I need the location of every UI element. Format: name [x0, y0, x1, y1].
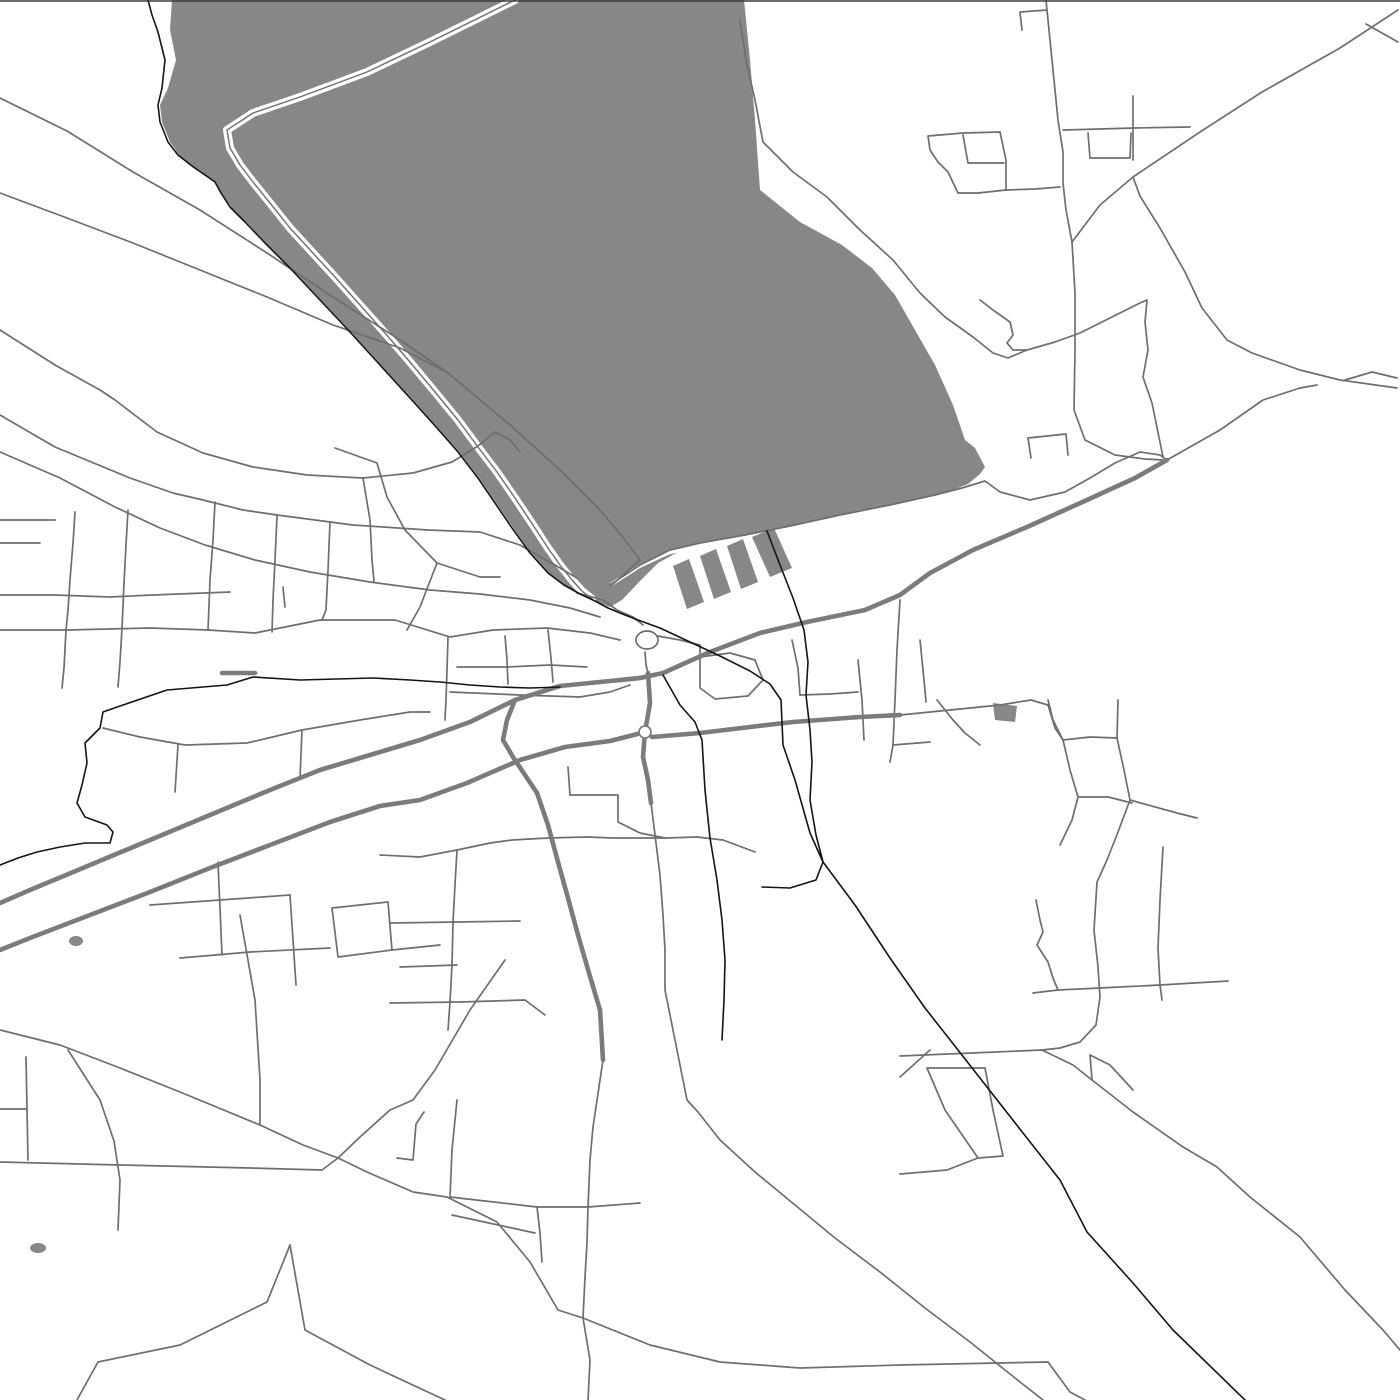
road	[77, 1245, 290, 1400]
road	[1158, 847, 1163, 1000]
road	[0, 1158, 338, 1170]
road	[1006, 187, 1060, 190]
road	[272, 516, 277, 632]
road	[445, 637, 448, 720]
road	[1042, 800, 1130, 1050]
pier-strip	[752, 528, 792, 577]
road	[858, 660, 864, 740]
street-map-svg[interactable]	[0, 0, 1400, 1400]
road	[1063, 127, 1190, 130]
road	[548, 630, 553, 682]
road	[645, 652, 648, 673]
railway	[823, 862, 1245, 1400]
road	[588, 1203, 640, 1207]
highway	[503, 700, 603, 1060]
road	[900, 1158, 978, 1174]
road	[208, 502, 215, 630]
road	[1167, 385, 1317, 460]
road	[1117, 700, 1130, 800]
road	[651, 803, 1043, 1400]
pier-strips-layer	[30, 528, 1017, 1253]
road	[66, 512, 75, 630]
road	[180, 948, 330, 958]
road	[1345, 372, 1397, 380]
road	[380, 837, 755, 857]
road	[1036, 900, 1058, 990]
road	[290, 895, 296, 985]
road	[407, 563, 437, 630]
road	[937, 700, 980, 745]
road	[1020, 10, 1047, 30]
map-canvas[interactable]	[0, 0, 1400, 1400]
road	[218, 862, 222, 955]
road	[240, 915, 260, 1125]
road	[448, 850, 457, 1030]
railway	[767, 531, 823, 862]
road	[900, 700, 1063, 740]
road	[457, 665, 587, 667]
road	[618, 795, 665, 838]
road	[118, 628, 122, 687]
road	[800, 692, 858, 695]
road	[583, 1318, 590, 1400]
road	[0, 1030, 338, 1158]
road	[122, 510, 128, 628]
road	[62, 630, 66, 688]
road	[893, 742, 930, 745]
road	[450, 1197, 588, 1207]
road	[1063, 737, 1117, 740]
highway	[643, 732, 651, 803]
river-line	[0, 677, 560, 865]
road	[68, 1050, 120, 1230]
road	[636, 631, 658, 649]
highway	[0, 732, 645, 950]
road	[792, 640, 800, 695]
road	[1033, 981, 1228, 993]
pier-strip	[700, 549, 731, 599]
pier-strip	[727, 539, 758, 589]
road	[927, 1068, 1003, 1158]
road	[900, 1050, 1042, 1056]
road	[658, 636, 700, 657]
road	[400, 965, 457, 967]
road	[175, 745, 178, 792]
road	[450, 1100, 457, 1197]
road	[1042, 1050, 1400, 1350]
road	[1048, 700, 1063, 740]
road	[890, 600, 900, 762]
pier-strip	[673, 559, 704, 609]
road	[980, 300, 1027, 350]
road	[1133, 177, 1252, 353]
road	[1072, 10, 1398, 242]
road	[505, 636, 508, 684]
road	[0, 592, 230, 597]
road	[103, 712, 430, 745]
road	[1046, 0, 1163, 460]
road	[332, 902, 392, 957]
road	[583, 1060, 603, 1318]
road	[392, 945, 440, 950]
road	[0, 620, 620, 640]
highway	[0, 678, 640, 903]
road	[1028, 434, 1068, 455]
roundabout	[639, 726, 651, 738]
road	[1063, 740, 1132, 803]
road	[338, 1158, 583, 1318]
road	[452, 1215, 535, 1233]
road	[537, 1207, 542, 1262]
road	[290, 1245, 445, 1400]
road	[338, 960, 505, 1158]
road	[1088, 133, 1131, 158]
road	[390, 921, 520, 923]
road	[322, 522, 330, 620]
road	[1060, 797, 1078, 845]
road	[300, 731, 302, 778]
road	[900, 1050, 930, 1077]
road	[1028, 438, 1031, 458]
road	[920, 640, 926, 702]
road	[397, 1112, 424, 1160]
road	[1252, 353, 1397, 388]
road	[568, 767, 570, 795]
pond-blob	[30, 1243, 46, 1253]
road	[700, 653, 763, 699]
road	[963, 135, 1004, 163]
pond-blob	[69, 936, 83, 946]
road	[1366, 24, 1398, 42]
highway	[645, 673, 650, 732]
road	[363, 478, 374, 582]
road	[583, 1318, 1085, 1400]
road	[283, 587, 285, 607]
road	[1130, 800, 1197, 818]
road	[1090, 1055, 1133, 1090]
